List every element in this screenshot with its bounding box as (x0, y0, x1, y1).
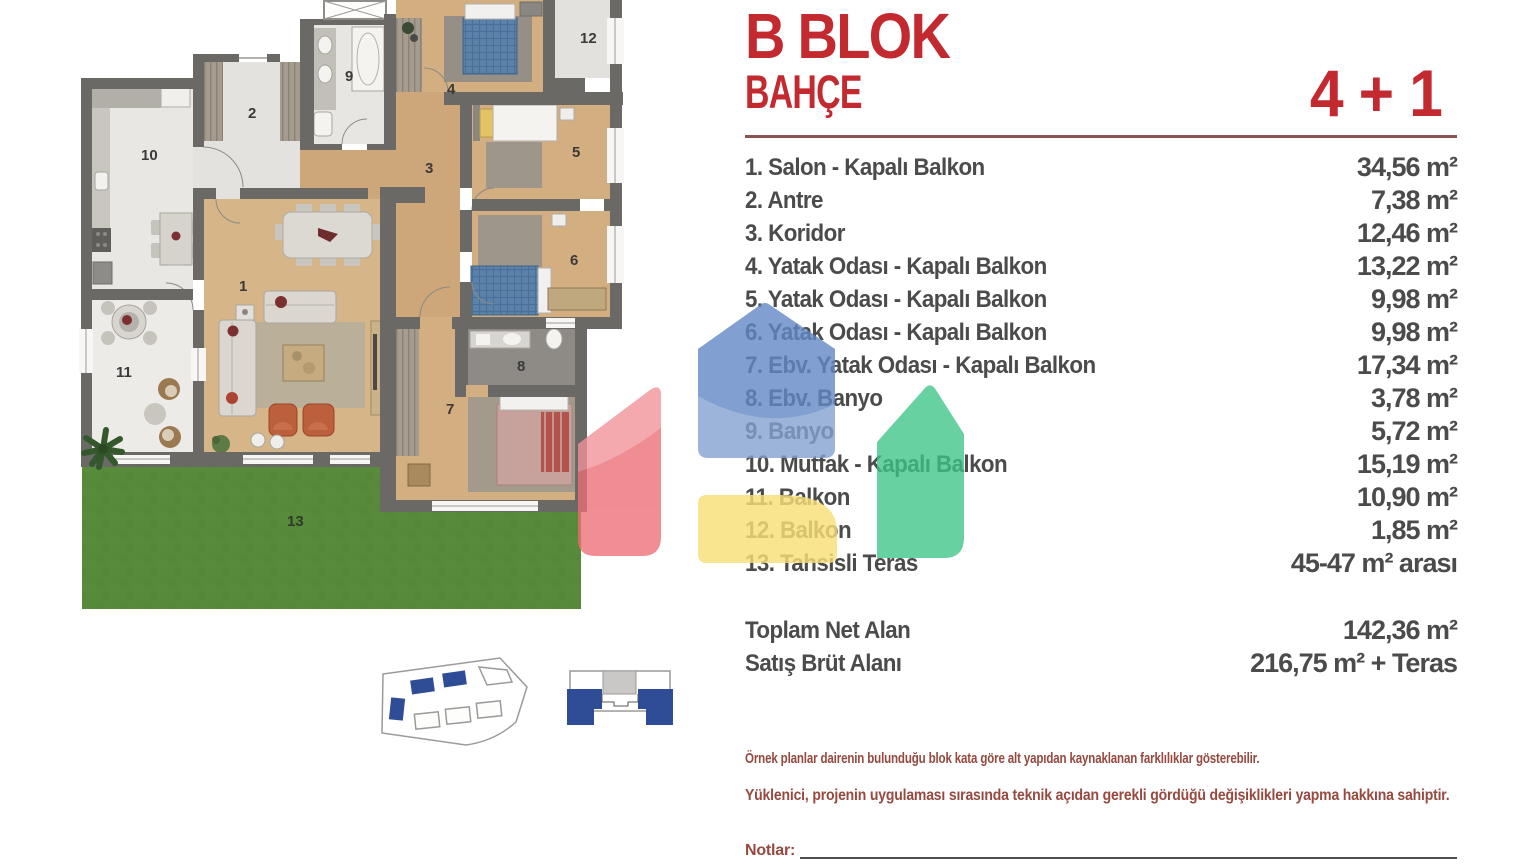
svg-text:9: 9 (345, 68, 353, 85)
svg-text:4: 4 (447, 81, 456, 98)
svg-text:2: 2 (248, 105, 256, 122)
svg-text:13: 13 (287, 513, 304, 530)
svg-text:12: 12 (580, 30, 597, 47)
svg-text:6: 6 (570, 252, 578, 269)
svg-text:10: 10 (141, 147, 158, 164)
svg-text:3: 3 (425, 160, 433, 177)
svg-text:7: 7 (446, 401, 454, 418)
svg-text:11: 11 (116, 364, 132, 381)
svg-text:1: 1 (239, 278, 247, 295)
svg-text:8: 8 (517, 358, 525, 375)
svg-text:5: 5 (572, 144, 580, 161)
